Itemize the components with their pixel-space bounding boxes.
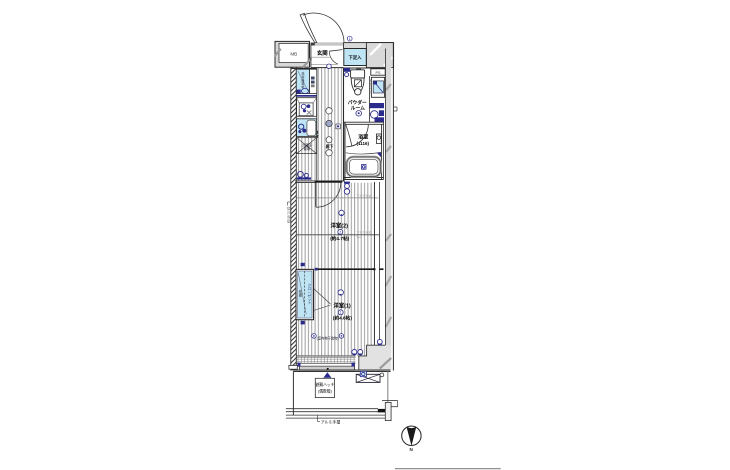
svg-text:(約4.7帖): (約4.7帖) [330,235,349,242]
svg-text:2: 2 [339,230,341,234]
svg-text:隣戸界壁: 隣戸界壁 [287,206,291,224]
svg-text:置場: 置場 [304,146,311,151]
svg-text:1: 1 [349,37,351,41]
svg-text:洋室(2): 洋室(2) [331,222,349,230]
svg-text:避難ハッチ: 避難ハッチ [315,382,334,387]
svg-text:(偶数階): (偶数階) [318,389,333,394]
svg-text:玄関: 玄関 [317,49,328,57]
svg-text:下がり天井: 下がり天井 [356,193,371,198]
svg-text:(室内物干金物): (室内物干金物) [317,336,339,341]
svg-text:下がり天井: 下がり天井 [356,230,371,235]
svg-text:洗面化粧: 洗面化粧 [369,79,372,94]
svg-text:アルミ手摺: アルミ手摺 [321,419,341,424]
svg-text:N: N [410,447,414,452]
svg-text:MB: MB [290,51,297,56]
svg-text:洗濯機置場: 洗濯機置場 [301,71,304,90]
svg-text:(約4.6帖): (約4.6帖) [333,315,352,322]
svg-text:洋室(1): 洋室(1) [333,302,351,310]
svg-text:1: 1 [340,311,342,315]
svg-text:パウダー: パウダー [348,99,367,106]
svg-text:廊下: 廊下 [325,144,334,149]
svg-text:PS: PS [376,71,381,75]
svg-text:浴室: 浴室 [358,133,368,140]
svg-text:下足入: 下足入 [349,54,363,61]
